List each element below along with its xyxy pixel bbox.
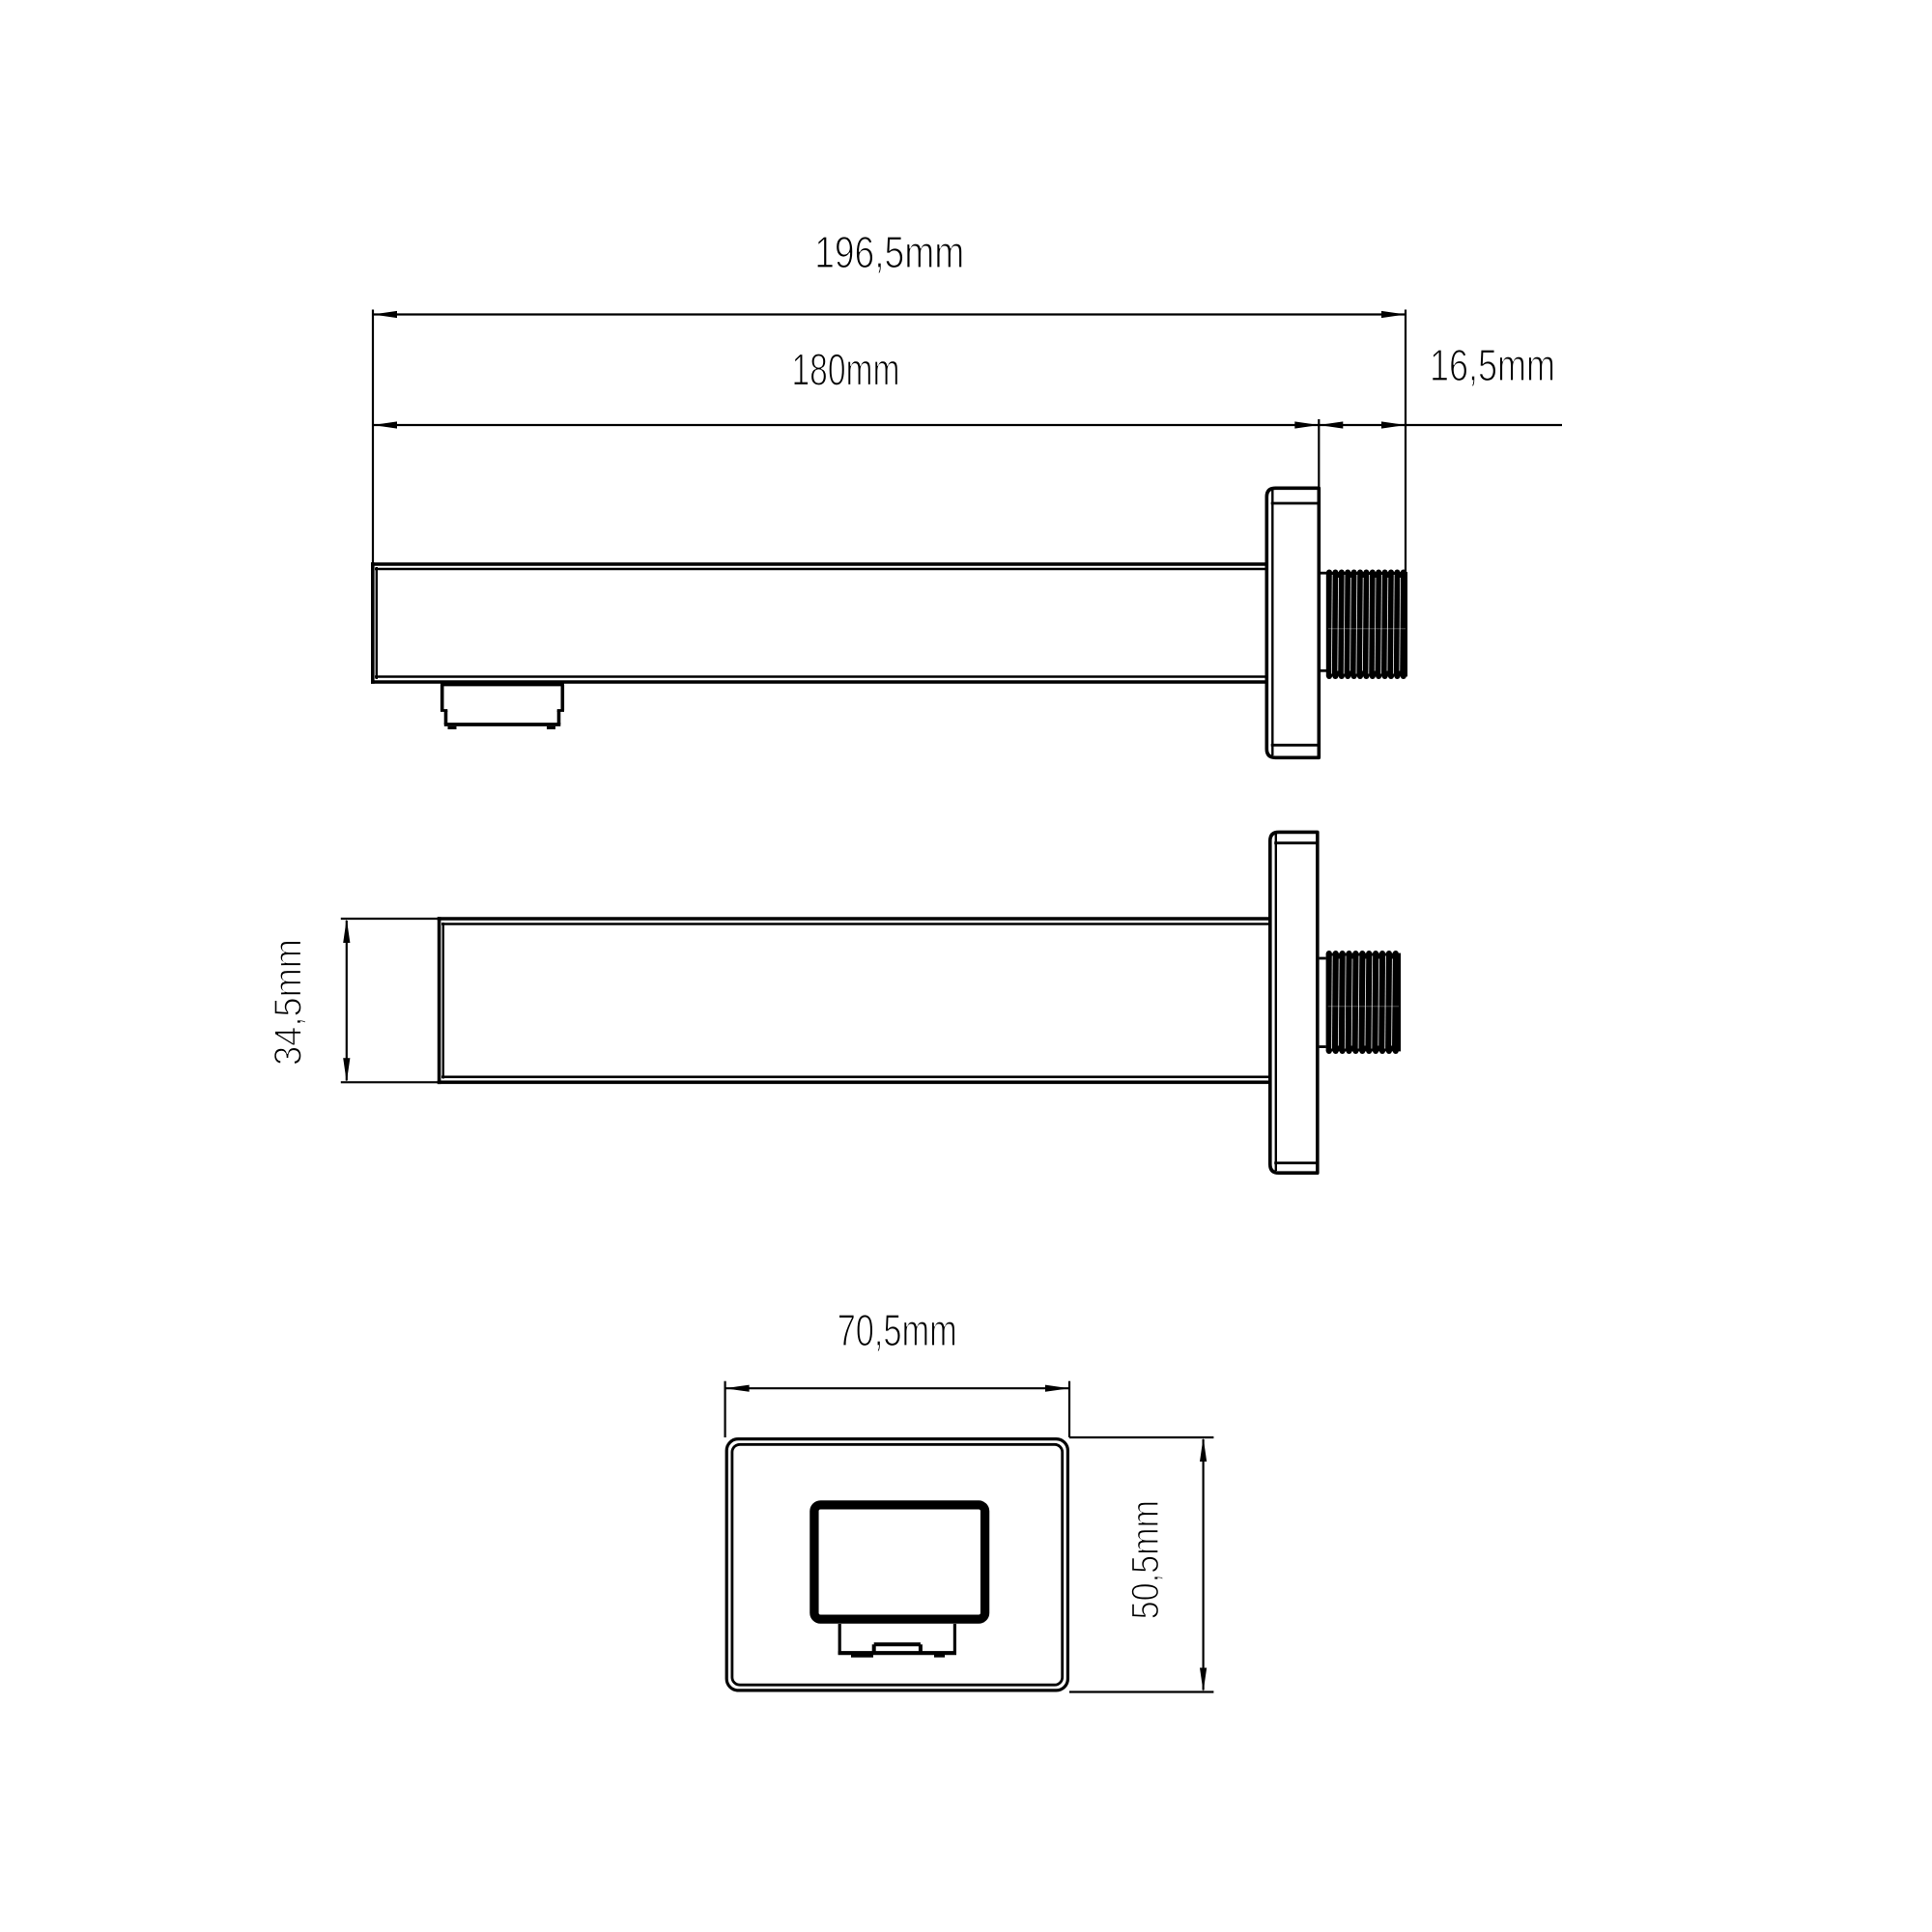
svg-text:70,5mm: 70,5mm bbox=[838, 1305, 957, 1355]
svg-text:196,5mm: 196,5mm bbox=[814, 227, 964, 277]
svg-text:16,5mm: 16,5mm bbox=[1430, 340, 1555, 390]
svg-text:50,5mm: 50,5mm bbox=[1124, 1500, 1167, 1620]
svg-text:34,5mm: 34,5mm bbox=[268, 939, 310, 1065]
svg-text:180mm: 180mm bbox=[792, 345, 900, 395]
